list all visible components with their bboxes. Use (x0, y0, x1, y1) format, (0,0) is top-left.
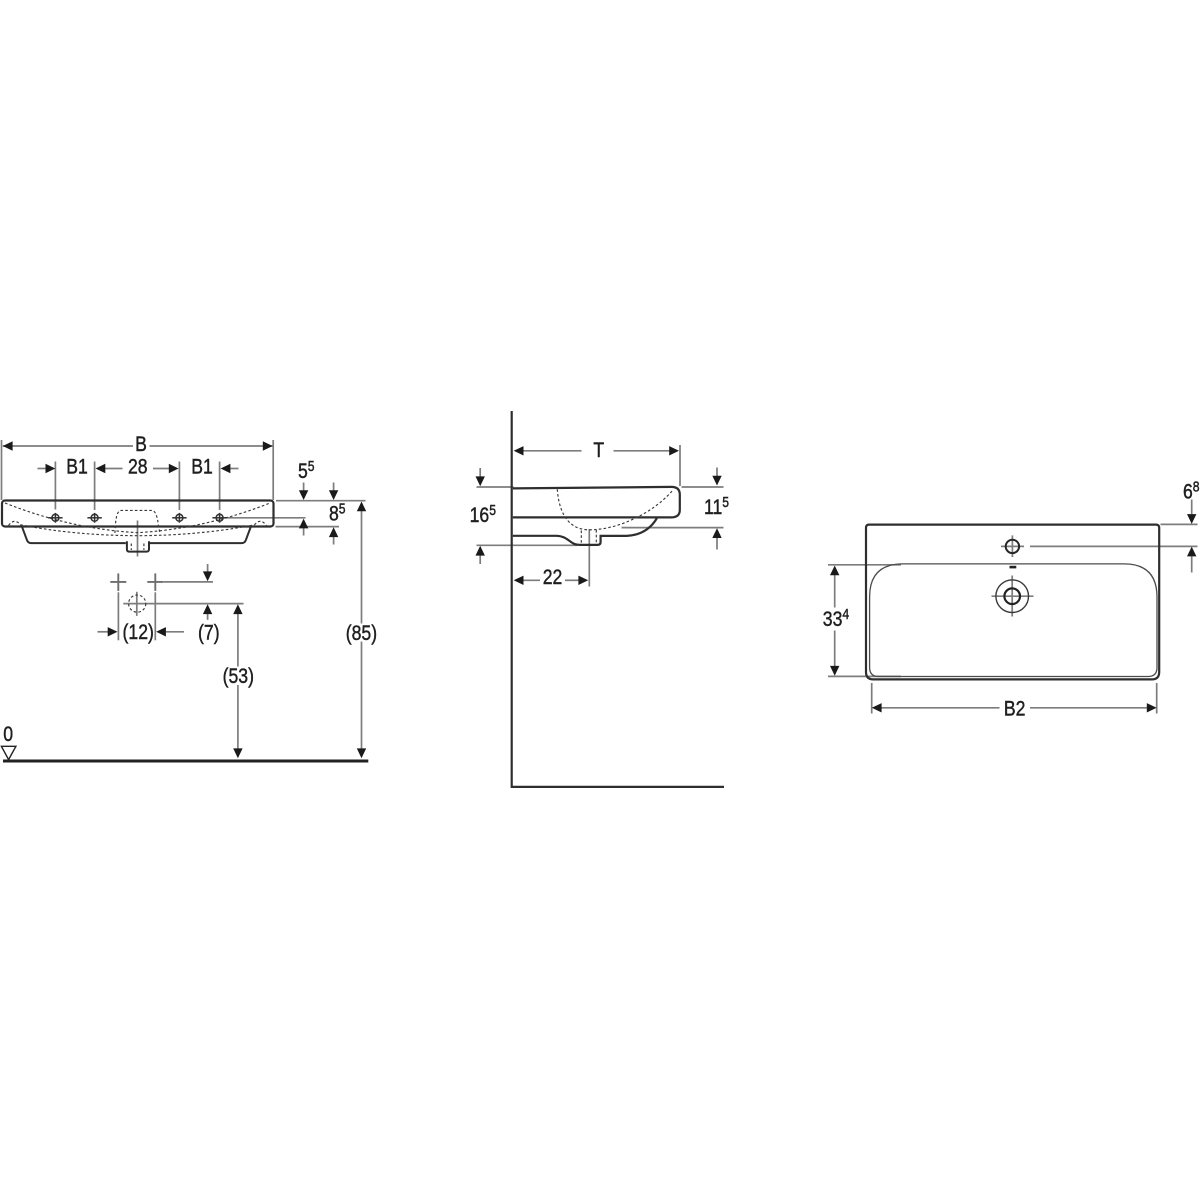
svg-text:B1: B1 (191, 455, 213, 479)
svg-text:(12): (12) (123, 620, 154, 644)
svg-text:22: 22 (543, 566, 563, 590)
svg-text:(85): (85) (346, 622, 377, 646)
svg-text:28: 28 (128, 455, 148, 479)
svg-text:B1: B1 (66, 455, 88, 479)
svg-text:0: 0 (3, 723, 13, 747)
svg-text:(7): (7) (198, 621, 220, 645)
svg-text:(53): (53) (223, 664, 254, 688)
svg-text:T: T (593, 439, 604, 463)
svg-text:B2: B2 (1004, 697, 1026, 721)
svg-text:B: B (135, 433, 147, 457)
